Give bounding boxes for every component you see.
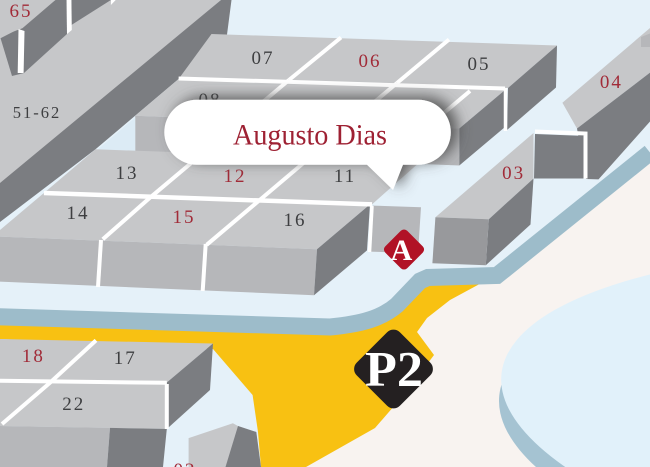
- svg-text:Augusto Dias: Augusto Dias: [233, 119, 387, 152]
- svg-text:18: 18: [22, 346, 45, 367]
- svg-text:16: 16: [284, 210, 307, 231]
- svg-text:06: 06: [359, 51, 382, 72]
- svg-text:13: 13: [116, 163, 139, 184]
- svg-text:02: 02: [174, 460, 197, 467]
- svg-text:07: 07: [252, 48, 275, 69]
- svg-text:05: 05: [468, 54, 491, 75]
- svg-text:15: 15: [173, 207, 196, 228]
- svg-text:03: 03: [502, 163, 525, 184]
- svg-text:14: 14: [67, 203, 90, 224]
- svg-text:12: 12: [224, 166, 247, 187]
- svg-text:22: 22: [62, 394, 85, 415]
- svg-text:65: 65: [10, 1, 33, 22]
- svg-text:P2: P2: [365, 341, 423, 397]
- svg-text:51-62: 51-62: [13, 103, 62, 122]
- svg-text:17: 17: [114, 348, 137, 369]
- svg-text:04: 04: [600, 72, 623, 93]
- svg-text:A: A: [391, 234, 413, 267]
- svg-text:11: 11: [334, 166, 356, 187]
